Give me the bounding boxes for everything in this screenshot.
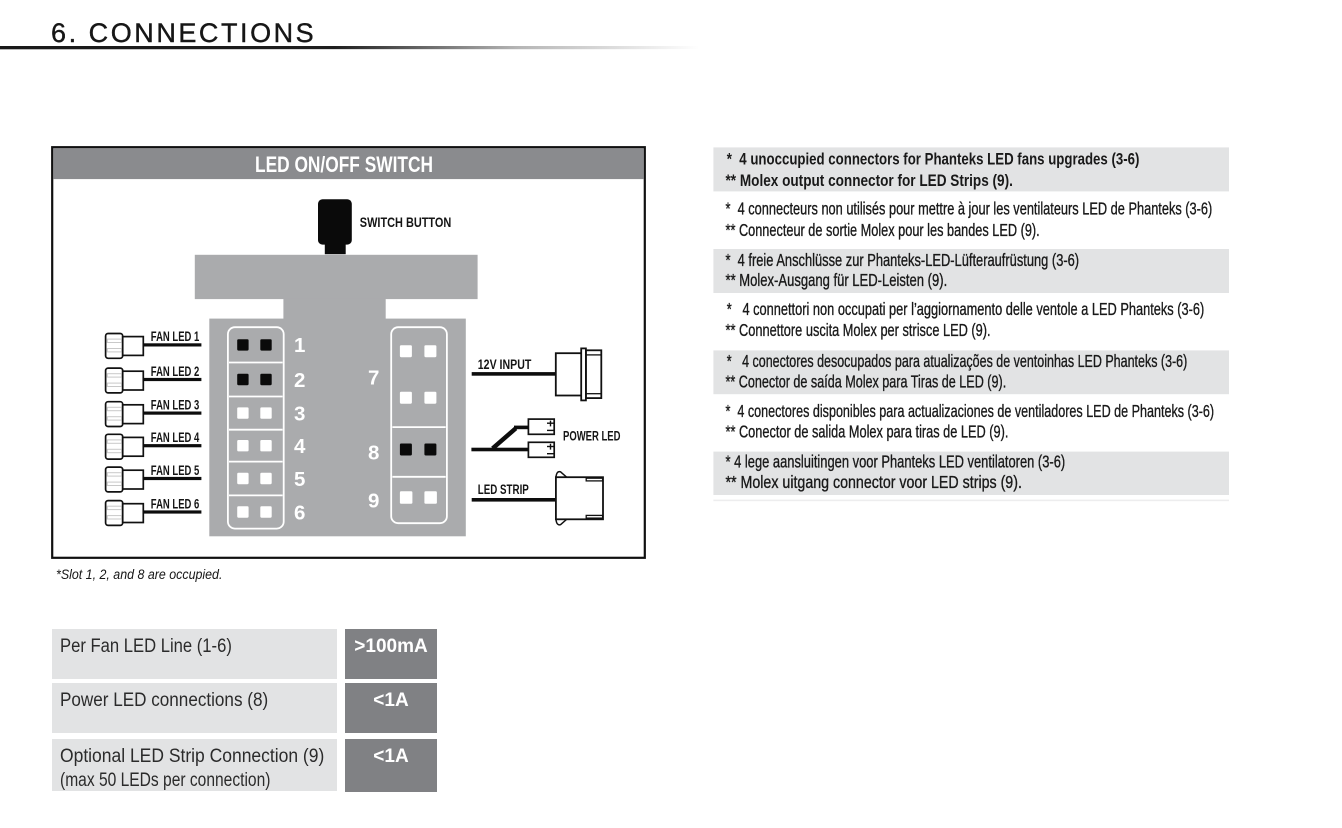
svg-text:LED STRIP: LED STRIP [478, 482, 529, 497]
svg-text:** Molex uitgang connector voo: ** Molex uitgang connector voor LED stri… [726, 472, 1022, 492]
svg-text:* 4 conectores disponibles pa: * 4 conectores disponibles para actualiz… [726, 401, 1215, 421]
svg-text:9: 9 [368, 489, 379, 512]
svg-text:* 4 unoccupied connectors for: * 4 unoccupied connectors for Phanteks L… [727, 150, 1140, 169]
svg-text:** Connecteur de sortie Molex: ** Connecteur de sortie Molex pour les b… [726, 220, 1040, 240]
svg-text:3: 3 [294, 402, 305, 425]
svg-text:4: 4 [294, 435, 306, 458]
svg-text:FAN LED 4: FAN LED 4 [151, 430, 200, 445]
svg-text:** Conector de saída Molex par: ** Conector de saída Molex para Tiras de… [726, 371, 1007, 391]
svg-text:** Molex-Ausgang für LED-Leist: ** Molex-Ausgang für LED-Leisten (9). [726, 270, 948, 290]
svg-text:SWITCH BUTTON: SWITCH BUTTON [360, 214, 452, 230]
svg-text:POWER LED: POWER LED [563, 429, 621, 444]
svg-text:* 4 connettori non occupati: * 4 connettori non occupati per l’aggior… [727, 299, 1205, 319]
svg-text:** Molex output connector for: ** Molex output connector for LED Strips… [726, 171, 1013, 190]
svg-text:2: 2 [294, 369, 305, 392]
svg-text:** Connettore uscita Molex per: ** Connettore uscita Molex per strisce L… [726, 320, 991, 340]
svg-text:FAN LED 1: FAN LED 1 [151, 329, 200, 344]
svg-text:7: 7 [368, 367, 379, 390]
svg-text:1: 1 [294, 334, 305, 357]
svg-text:* 4 freie Anschlüsse zur Phan: * 4 freie Anschlüsse zur Phanteks-LED-Lü… [726, 250, 1080, 270]
svg-text:LED ON/OFF SWITCH: LED ON/OFF SWITCH [255, 152, 433, 177]
svg-text:12V INPUT: 12V INPUT [478, 357, 532, 372]
svg-text:8: 8 [368, 441, 379, 464]
svg-text:* 4 lege aansluitingen voor Ph: * 4 lege aansluitingen voor Phanteks LED… [726, 451, 1066, 471]
svg-text:6: 6 [294, 501, 305, 524]
svg-text:* 4 connecteurs non utilisés: * 4 connecteurs non utilisés pour mettre… [726, 199, 1213, 219]
svg-text:FAN LED 5: FAN LED 5 [151, 463, 200, 478]
svg-text:5: 5 [294, 468, 305, 491]
svg-text:** Conector de salida Molex pa: ** Conector de salida Molex para tiras d… [726, 422, 1009, 442]
svg-text:FAN LED 3: FAN LED 3 [151, 397, 200, 412]
svg-text:FAN LED 2: FAN LED 2 [151, 364, 200, 379]
svg-text:* 4 conectores desocupados p: * 4 conectores desocupados para atualiza… [727, 351, 1188, 371]
svg-text:FAN LED 6: FAN LED 6 [151, 496, 200, 511]
